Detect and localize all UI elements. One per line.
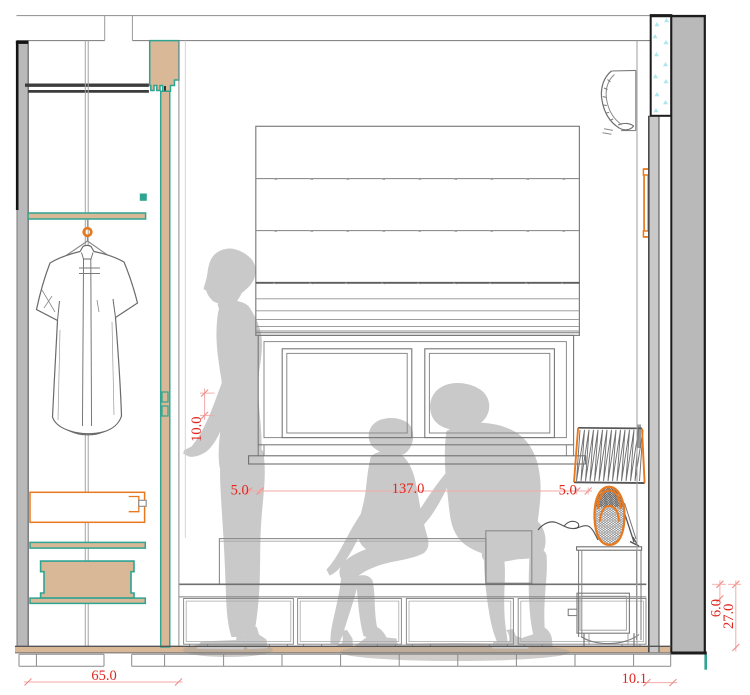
svg-text:65.0: 65.0	[91, 668, 116, 684]
svg-text:137.0: 137.0	[392, 481, 425, 497]
svg-text:5.0: 5.0	[231, 483, 249, 499]
svg-text:5.0: 5.0	[559, 483, 577, 499]
svg-text:10.1: 10.1	[622, 671, 647, 687]
svg-text:27.0: 27.0	[721, 604, 737, 629]
svg-text:10.0: 10.0	[189, 417, 205, 442]
